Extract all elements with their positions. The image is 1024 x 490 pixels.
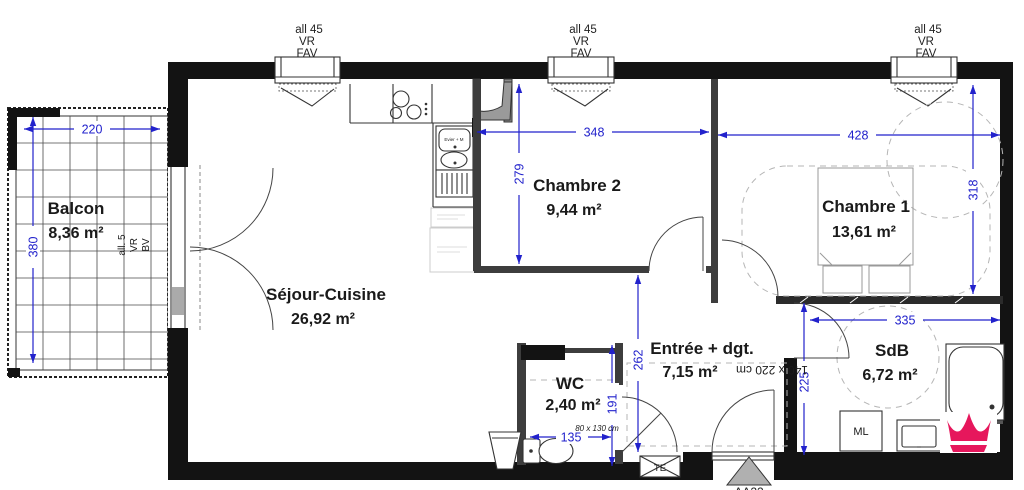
balcon-area: 8,36 m²: [48, 225, 103, 242]
window-sejour: all 45 VR FAV: [275, 24, 340, 106]
dim-chambre2-width: 348: [584, 126, 605, 140]
entree-name: Entrée + dgt.: [650, 339, 753, 358]
dim-wc-height: 191: [606, 394, 620, 415]
section-marker-label: AA22: [734, 485, 764, 490]
window-label-allege: all 45: [295, 24, 323, 36]
dim-chambre1-height: 318: [967, 180, 981, 201]
te-electrical-panel: TE: [640, 456, 680, 477]
window-chambre1: all 45 VR FAV: [891, 24, 957, 106]
kitchen-furniture-outline: [430, 228, 474, 272]
window-label-allege: all 45: [914, 24, 942, 36]
section-marker: AA22: [727, 457, 771, 490]
dim-entree-height: 262: [632, 350, 646, 371]
chambre1-door-swing: [722, 240, 778, 297]
window-label-fav: FAV: [916, 48, 937, 60]
clearance-circles: [530, 102, 1003, 446]
window-label-vr: VR: [299, 36, 315, 48]
washing-machine-icon: ML: [840, 411, 882, 451]
sejour-name: Séjour-Cuisine: [266, 285, 386, 304]
window-label-vr: VR: [918, 36, 934, 48]
sejour-area: 26,92 m²: [291, 311, 355, 328]
wc-door-size-note: 80 x 130 cm: [575, 424, 619, 433]
crown-base: [950, 445, 987, 452]
te-label: TE: [654, 463, 666, 474]
chambre2-door-swing: [649, 217, 703, 271]
floor-plan: all 45 VR FAV all 45 VR FAV all 45 VR FA…: [0, 0, 1024, 490]
bed-size-note: 140 x 220 cm: [736, 363, 808, 377]
door-leaf-panel: [172, 287, 184, 315]
section-triangle-icon: [727, 457, 771, 485]
cooktop-icon: [391, 91, 428, 119]
sdb-name: SdB: [875, 341, 909, 360]
balcony-door-bv: BV: [141, 238, 152, 252]
wc-area: 2,40 m²: [545, 397, 600, 414]
floor-plan-page: all 45 VR FAV all 45 VR FAV all 45 VR FA…: [0, 0, 1024, 490]
window-chambre2: all 45 VR FAV: [548, 24, 614, 106]
chambre2-name: Chambre 2: [533, 176, 621, 195]
dish-drainer-icon: [436, 170, 473, 197]
dim-chambre2-height: 279: [513, 164, 527, 185]
dim-balcon-height: 380: [27, 237, 41, 258]
window-label-allege: all 45: [569, 24, 597, 36]
balcony-door-allege: all. 5: [117, 234, 128, 256]
dim-sdb-width: 335: [895, 314, 916, 328]
kitchen-sink-icon: Evier + M: [436, 126, 473, 170]
entrance-door-swing: [712, 390, 774, 452]
chambre1-area: 13,61 m²: [832, 224, 896, 241]
balcon-name: Balcon: [48, 199, 105, 218]
dim-balcon-width: 220: [82, 123, 103, 137]
sink-label: Evier + M: [444, 137, 463, 142]
crown-logo: [940, 412, 997, 453]
balcony-corner-wall: [8, 108, 17, 170]
dim-chambre1-width: 428: [848, 129, 869, 143]
kitchen-counter: Evier + M: [350, 84, 474, 272]
entrance-threshold: [712, 452, 774, 460]
window-label-fav: FAV: [297, 48, 318, 60]
washbasin-sdb-icon: [897, 420, 941, 451]
kitchen-furniture-outline: [431, 208, 474, 227]
entree-area: 7,15 m²: [662, 364, 717, 381]
chambre2-area: 9,44 m²: [546, 202, 601, 219]
sdb-area: 6,72 m²: [862, 367, 917, 384]
balcony-corner-wall: [8, 368, 20, 377]
balcony-door-label: all. 5 VR BV: [117, 234, 152, 256]
balcony-door: all. 5 VR BV: [117, 162, 273, 333]
wc-name: WC: [556, 374, 584, 393]
chambre1-name: Chambre 1: [822, 197, 910, 216]
window-label-vr: VR: [573, 36, 589, 48]
window-label-fav: FAV: [571, 48, 592, 60]
doors: [622, 217, 849, 452]
balcony-door-vr: VR: [129, 238, 140, 252]
ml-label: ML: [853, 426, 868, 438]
